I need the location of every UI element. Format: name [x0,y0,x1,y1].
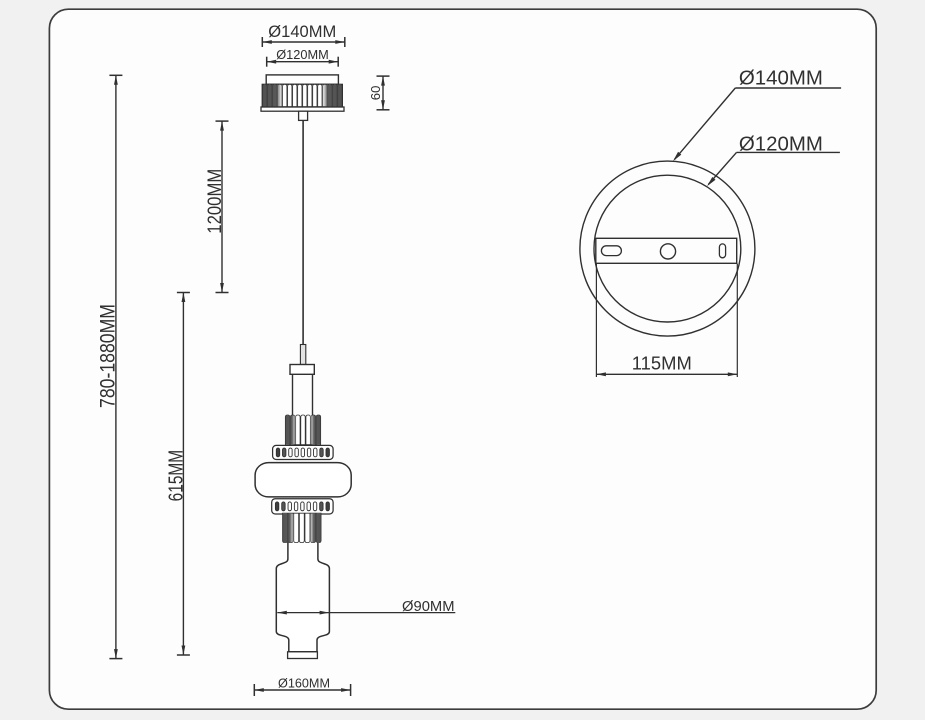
svg-text:615MM: 615MM [165,450,187,502]
svg-text:60: 60 [368,86,383,101]
svg-text:115MM: 115MM [632,354,692,374]
svg-text:780-1880MM: 780-1880MM [97,304,120,408]
svg-text:Ø120MM: Ø120MM [276,47,329,62]
svg-text:Ø90MM: Ø90MM [402,598,455,615]
svg-text:1200MM: 1200MM [205,169,226,234]
svg-text:Ø140MM: Ø140MM [739,68,823,90]
svg-text:Ø160MM: Ø160MM [278,676,330,691]
svg-text:Ø140MM: Ø140MM [268,22,336,41]
